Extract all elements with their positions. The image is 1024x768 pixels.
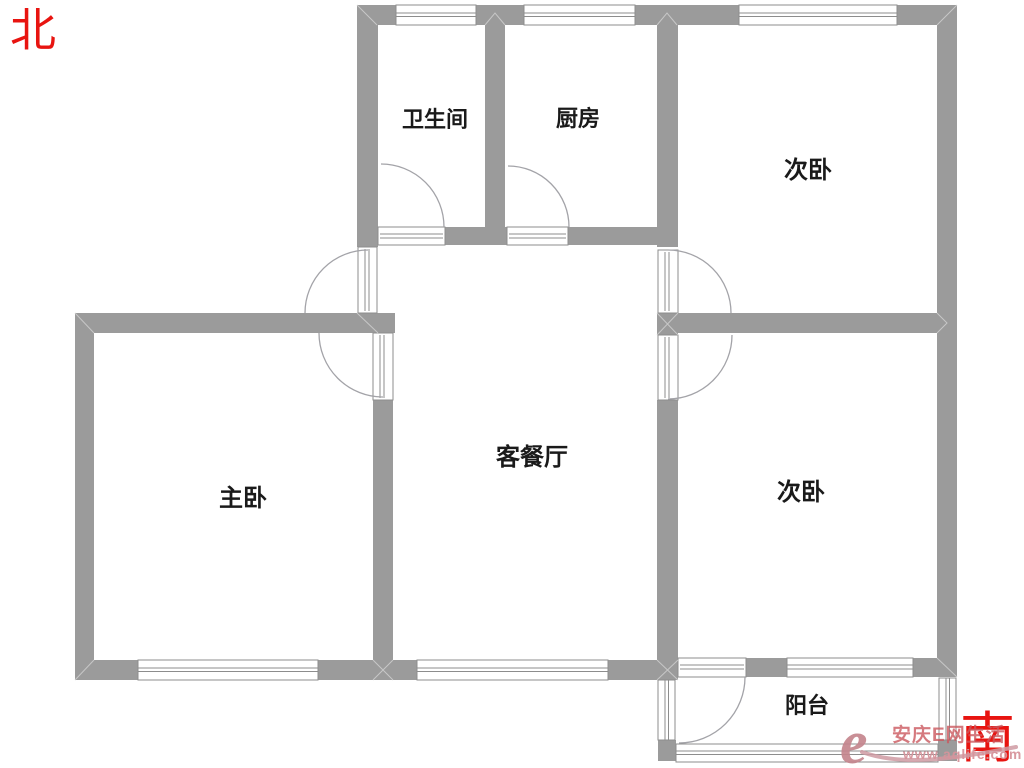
door-swing-arc: [508, 166, 569, 227]
door-kitchen: [507, 166, 569, 245]
compass-north-label: 北: [10, 5, 56, 56]
door-leaf: [678, 658, 746, 677]
door-bedroom-ne: [658, 250, 731, 313]
wall-master-top: [75, 313, 395, 333]
window-frame: [658, 680, 675, 740]
room-label-bedroom-ne: 次卧: [784, 157, 832, 184]
wall-bedroom-se-bottom-a: [746, 658, 787, 677]
room-label-kitchen: 厨房: [556, 106, 600, 131]
room-label-balcony: 阳台: [785, 693, 829, 718]
wall-balcony-left-stub: [658, 740, 676, 761]
window-kitchen-top: [524, 5, 635, 25]
window-frame: [787, 658, 913, 677]
walls: [75, 5, 957, 761]
wall-bathroom-left: [357, 5, 378, 247]
window-bedroom-se-bottom: [787, 658, 913, 677]
door-bathroom: [378, 164, 445, 245]
watermark-site-url: www.aqlife.com: [902, 746, 1022, 762]
window-frame: [138, 660, 318, 680]
wall-bottom-b: [318, 660, 417, 680]
wall-master-right: [373, 400, 393, 660]
window-master-bottom: [138, 660, 318, 680]
door-swing-arc: [679, 677, 745, 743]
room-label-master-bedroom: 主卧: [219, 485, 267, 512]
room-label-bedroom-se: 次卧: [777, 479, 825, 506]
wall-miter-seams: [75, 5, 957, 680]
room-label-bathroom: 卫生间: [402, 107, 468, 132]
door-leaf: [358, 247, 377, 313]
door-master-bedroom: [319, 333, 393, 400]
wall-center-lower: [657, 400, 678, 680]
door-leaf: [378, 227, 445, 245]
window-frame: [524, 5, 635, 25]
watermark-logo-e: e: [840, 709, 868, 768]
door-entrance: [305, 247, 377, 313]
watermark-site-name: 安庆E网生活: [892, 723, 1006, 746]
wall-bath-kitchen-bottom-a: [445, 227, 507, 245]
door-leaf: [658, 335, 678, 400]
window-bathroom-top: [396, 5, 476, 25]
wall-bath-kitchen-bottom-b: [568, 227, 657, 245]
wall-master-left: [75, 313, 94, 680]
room-label-living-dining: 客餐厅: [496, 443, 568, 471]
compass-marks: 北 南: [10, 5, 1015, 768]
window-frame: [739, 5, 897, 25]
windows: [138, 5, 956, 762]
wall-center-upper: [657, 5, 678, 247]
door-leaf: [658, 250, 678, 313]
window-frame: [417, 660, 608, 680]
window-living-bottom: [417, 660, 608, 680]
window-balcony-left: [658, 680, 675, 740]
door-leaf: [373, 333, 393, 400]
wall-bedrooms-divider: [657, 313, 957, 333]
room-labels: 卫生间 厨房 次卧 主卧 客餐厅 次卧 阳台: [219, 106, 832, 718]
door-bedroom-se: [658, 335, 732, 400]
door-leaf: [507, 227, 568, 245]
window-frame: [396, 5, 476, 25]
wall-bedroom-se-bottom-b: [913, 658, 957, 677]
window-bedroom-ne-top: [739, 5, 897, 25]
floor-plan-drawing: 卫生间 厨房 次卧 主卧 客餐厅 次卧 阳台 北 南 e 安庆E网生活 www.…: [0, 0, 1024, 768]
door-balcony: [678, 658, 746, 743]
wall-right-exterior: [937, 5, 957, 677]
door-swing-arc: [381, 164, 444, 227]
wall-bath-kitchen-divider: [485, 25, 505, 227]
floor-plan-canvas: 卫生间 厨房 次卧 主卧 客餐厅 次卧 阳台 北 南 e 安庆E网生活 www.…: [0, 0, 1024, 768]
